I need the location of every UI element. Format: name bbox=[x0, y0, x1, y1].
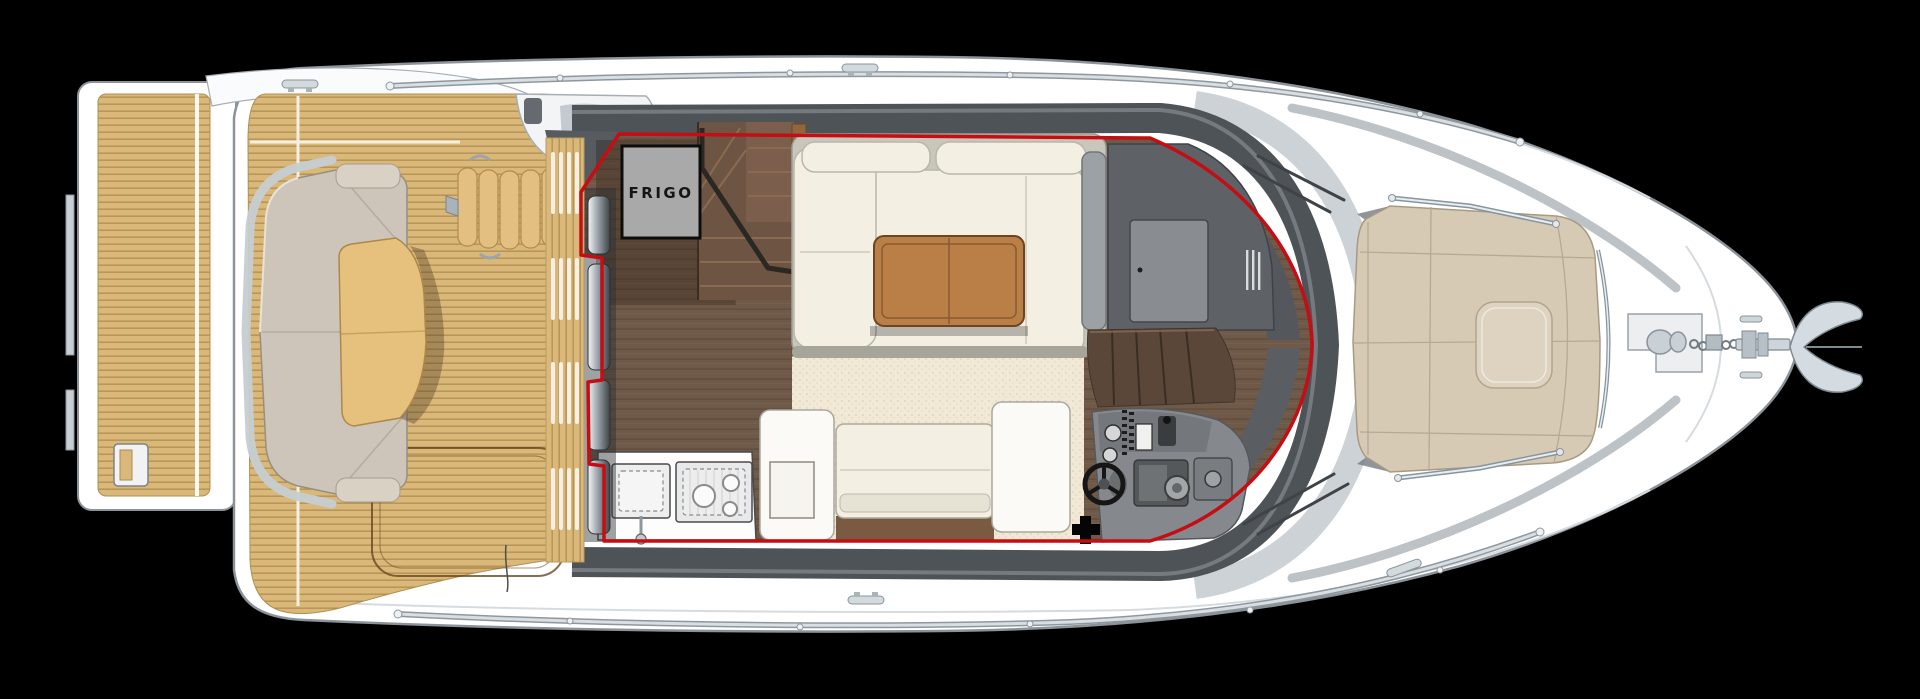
galley-counter bbox=[598, 452, 756, 544]
back-cushion bbox=[936, 142, 1086, 174]
door-panel bbox=[588, 380, 610, 450]
chair-bracket bbox=[446, 196, 458, 216]
platform-trim bbox=[66, 390, 74, 450]
sofa-armrest bbox=[1082, 152, 1106, 330]
door-panel bbox=[588, 264, 610, 370]
door-handle bbox=[1138, 268, 1143, 273]
frigo-label: FRIGO bbox=[629, 184, 694, 202]
sofa-chaise bbox=[794, 148, 876, 348]
door-panel bbox=[588, 460, 610, 534]
yacht-deck-plan: FRIGO bbox=[0, 0, 1920, 699]
cockpit-table bbox=[339, 238, 444, 426]
platform-trim bbox=[66, 195, 74, 355]
burner bbox=[723, 475, 739, 491]
back-cushion bbox=[802, 142, 930, 172]
bench-floor-strip bbox=[836, 516, 994, 542]
side-steps bbox=[546, 138, 584, 562]
bow-sunpad bbox=[1353, 206, 1600, 472]
swim-platform bbox=[66, 82, 236, 510]
helm-display bbox=[1136, 424, 1152, 450]
salon-door bbox=[584, 188, 616, 542]
bow-cleat bbox=[1740, 372, 1762, 378]
armrest-cushion bbox=[336, 164, 400, 188]
platform-teak bbox=[98, 94, 210, 496]
frigo-box: FRIGO bbox=[622, 146, 700, 238]
burner bbox=[723, 502, 737, 516]
salon-table bbox=[870, 236, 1028, 336]
burner bbox=[693, 485, 715, 507]
armrest-cushion bbox=[336, 478, 400, 502]
galley-stove bbox=[676, 462, 752, 522]
windlass-drum bbox=[1647, 330, 1673, 354]
seat-module-right bbox=[992, 402, 1070, 532]
yacht-deck-plan-canvas: FRIGO bbox=[0, 0, 1920, 699]
bow-cleat bbox=[1740, 316, 1762, 322]
sofa-base-shadow bbox=[792, 346, 1088, 358]
sunpad-center-cushion bbox=[1476, 302, 1552, 388]
door-panel bbox=[588, 196, 610, 254]
gauge-icon bbox=[1103, 448, 1117, 462]
gauge-icon bbox=[1105, 425, 1121, 441]
helm-console bbox=[1085, 408, 1250, 542]
salon: FRIGO bbox=[581, 122, 1312, 544]
stairs-down bbox=[1087, 328, 1235, 407]
